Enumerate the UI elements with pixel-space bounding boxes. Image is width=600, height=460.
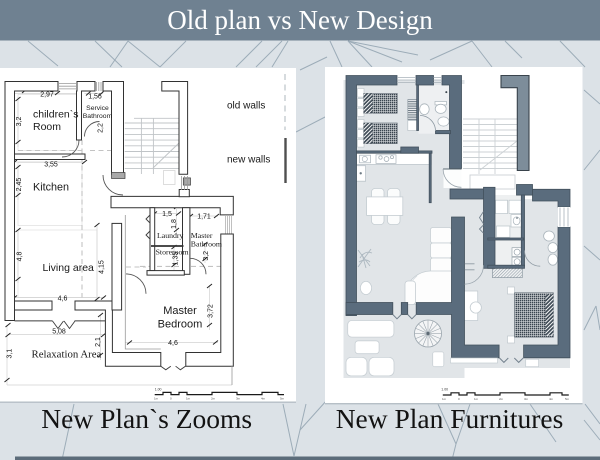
svg-text:1,8: 1,8: [171, 219, 178, 229]
svg-text:Bathroom: Bathroom: [191, 240, 222, 249]
svg-text:Living area: Living area: [43, 262, 95, 274]
svg-text:3,2: 3,2: [203, 251, 210, 261]
svg-text:3,2: 3,2: [16, 117, 23, 127]
svg-text:1m: 1m: [442, 397, 447, 401]
svg-text:children`s: children`s: [33, 109, 79, 121]
svg-text:4,6: 4,6: [58, 296, 68, 303]
svg-text:1m: 1m: [186, 397, 191, 401]
svg-text:new walls: new walls: [227, 155, 270, 166]
svg-text:2m: 2m: [499, 397, 504, 401]
svg-text:2,45: 2,45: [16, 178, 23, 192]
svg-text:3,1: 3,1: [7, 349, 14, 359]
svg-text:Kitchen: Kitchen: [33, 182, 69, 194]
svg-text:old walls: old walls: [227, 101, 265, 112]
svg-text:Old plan vs New Design: Old plan vs New Design: [167, 5, 433, 35]
svg-text:4m: 4m: [549, 397, 554, 401]
svg-text:5,08: 5,08: [52, 329, 66, 336]
svg-text:1.00: 1.00: [155, 388, 162, 392]
svg-text:3,55: 3,55: [44, 162, 58, 169]
svg-text:4,8: 4,8: [17, 252, 24, 262]
svg-text:Master: Master: [163, 305, 197, 317]
svg-text:3m: 3m: [236, 397, 241, 401]
svg-text:4m: 4m: [261, 397, 266, 401]
svg-text:1.00: 1.00: [441, 388, 448, 392]
svg-text:4,15: 4,15: [99, 260, 106, 274]
svg-text:1m: 1m: [474, 397, 479, 401]
svg-text:3,72: 3,72: [207, 304, 214, 318]
svg-text:Bathroom: Bathroom: [83, 113, 113, 120]
svg-text:2,97: 2,97: [40, 92, 54, 99]
svg-text:1m: 1m: [154, 397, 159, 401]
svg-text:2m: 2m: [211, 397, 216, 401]
svg-text:New Plan`s Zooms: New Plan`s Zooms: [41, 403, 252, 434]
svg-text:4,6: 4,6: [168, 340, 178, 347]
svg-text:New Plan Furnitures: New Plan Furnitures: [336, 403, 564, 434]
svg-text:2,1: 2,1: [95, 337, 102, 347]
svg-text:1,71: 1,71: [197, 214, 211, 221]
svg-text:Service: Service: [86, 105, 109, 112]
svg-text:5m: 5m: [280, 397, 285, 401]
svg-text:1,56: 1,56: [88, 94, 102, 101]
svg-text:5m: 5m: [565, 397, 570, 401]
svg-text:Relaxation Area: Relaxation Area: [32, 349, 102, 361]
svg-text:Bedroom: Bedroom: [158, 319, 203, 331]
svg-text:3m: 3m: [524, 397, 529, 401]
svg-text:1,35: 1,35: [173, 252, 180, 266]
svg-text:2,2: 2,2: [98, 123, 105, 133]
svg-text:Laundry: Laundry: [157, 231, 184, 240]
svg-text:Room: Room: [33, 121, 61, 133]
svg-text:1,5: 1,5: [162, 211, 172, 218]
